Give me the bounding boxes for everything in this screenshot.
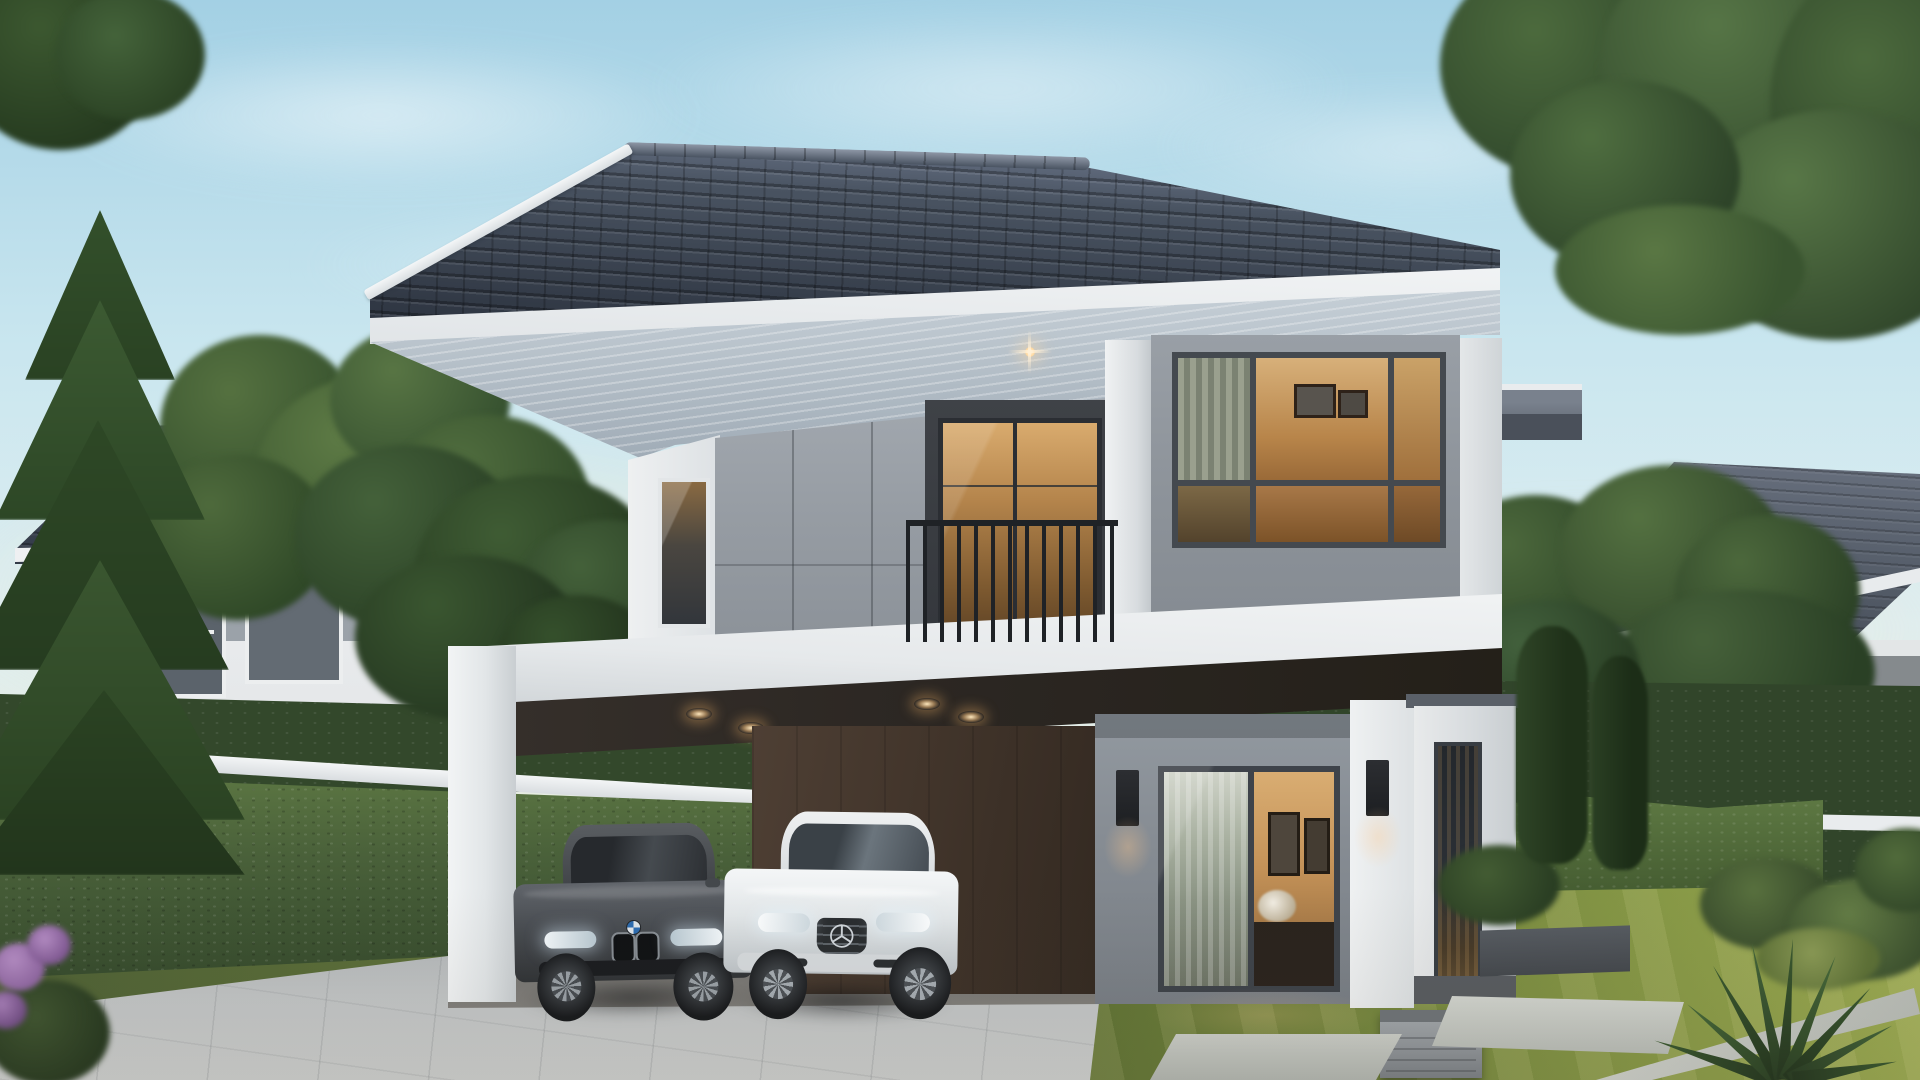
window-reflection (662, 482, 706, 624)
bmw-headlight (670, 928, 722, 946)
balcony-railing (906, 520, 1118, 642)
garden-step-dark (1480, 925, 1630, 976)
bmw-mirror (705, 878, 720, 887)
window-pane-low (1394, 486, 1440, 542)
merc-headlight (876, 912, 930, 932)
driveway-edge-bush (55, 975, 220, 1067)
cypress-tree (1516, 626, 1588, 864)
bmw-kidney-grille (611, 932, 636, 963)
merc-grille (817, 918, 867, 955)
merc-headlight (758, 913, 810, 933)
picture-frame (1338, 390, 1368, 418)
window-pane-right (1394, 358, 1440, 480)
star-flare (1028, 330, 1031, 374)
bmw-car (512, 820, 754, 1025)
mercedes-star-icon (829, 923, 855, 949)
window-pane-interior (1256, 358, 1388, 480)
stepping-stone (1150, 1034, 1402, 1080)
pine-tree (0, 210, 245, 875)
sconce-glow (1104, 816, 1152, 878)
rendering-scene (0, 0, 1920, 1080)
spiky-plant (1640, 938, 1920, 1080)
corner-bedroom-window (1172, 352, 1446, 548)
window-pane-low (1256, 486, 1388, 542)
eave-shadow (1095, 714, 1357, 738)
bmw-headlight (544, 931, 596, 949)
tree-foliage (1555, 205, 1805, 335)
purple-flowers (27, 925, 71, 965)
downlight (914, 698, 940, 710)
paving-light-pool (1150, 988, 1380, 1042)
downlight (958, 711, 984, 723)
narrow-stair-window (658, 478, 710, 628)
bmw-kidney-grille (635, 931, 660, 962)
carport-post (448, 646, 516, 1002)
window-pane-low (1178, 486, 1250, 542)
living-room-slider (1158, 766, 1340, 992)
downlight (686, 708, 712, 720)
mercedes-car (723, 810, 960, 1029)
soffit-downlight-star (1008, 330, 1052, 374)
window-pane-curtain (1178, 358, 1250, 480)
slider-reflection (1158, 766, 1340, 992)
sconce-glow (1354, 806, 1402, 868)
picture-frame (1294, 384, 1336, 418)
cypress-tree (1592, 656, 1648, 870)
